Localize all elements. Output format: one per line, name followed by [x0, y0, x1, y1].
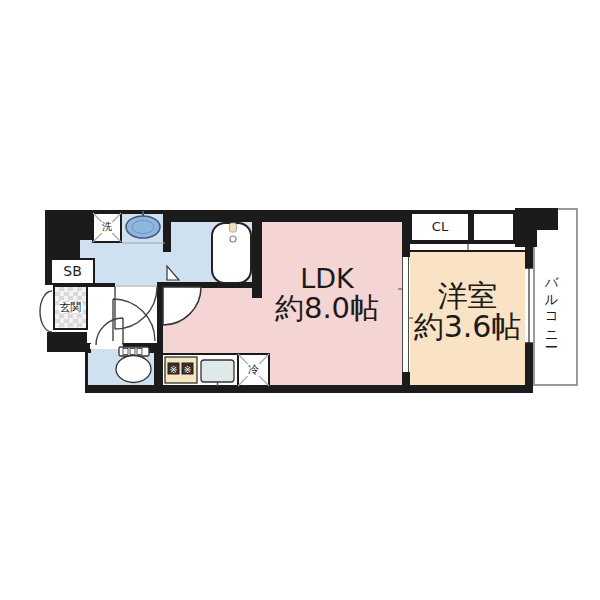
floorplan: ※ ※: [0, 0, 600, 600]
kitchen-sink-icon: [201, 360, 234, 386]
ldk-size: 約8.0帖: [275, 293, 379, 323]
entrance-door-arc: [40, 291, 52, 332]
fridge-label: 冷: [237, 353, 270, 387]
stove-icon: ※ ※: [165, 357, 197, 383]
western-room-label: 洋室 約3.6帖: [385, 278, 550, 344]
hall-door-arc: [113, 299, 155, 341]
western-room-name: 洋室: [438, 280, 498, 312]
toilet-door-gap: [90, 344, 123, 349]
balcony-label: バルコニー: [544, 255, 560, 355]
closet-label: CL: [410, 212, 470, 242]
ldk-name: LDK: [300, 265, 354, 293]
toilet-door-arc: [96, 318, 123, 345]
washer-label: 洗: [92, 212, 122, 243]
entrance-label: 玄関: [53, 285, 88, 330]
toilet-icon: [116, 347, 151, 383]
bathtub-icon: [212, 223, 251, 283]
western-room-size: 約3.6帖: [414, 311, 522, 343]
ldk-door-arc: [163, 287, 201, 325]
shoe-box-label: SB: [50, 258, 95, 285]
svg-text:※: ※: [170, 365, 178, 375]
svg-text:※: ※: [184, 365, 192, 375]
ldk-label: LDK 約8.0帖: [252, 262, 402, 326]
wash-basin-icon: [122, 211, 165, 243]
bath-door-icon: [167, 266, 179, 280]
